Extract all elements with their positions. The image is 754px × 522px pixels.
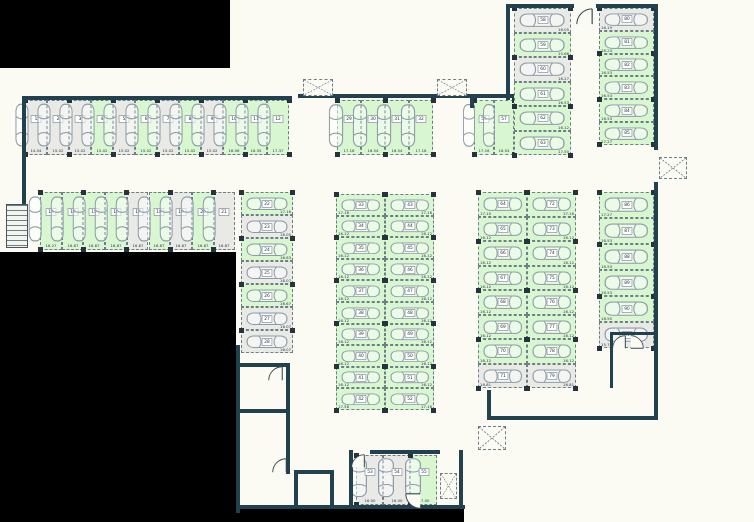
- stall-number: 54: [391, 469, 402, 476]
- column-marker: [124, 247, 129, 252]
- stall-number: 52: [404, 395, 415, 402]
- column-marker: [525, 337, 530, 342]
- parking-stall-44[interactable]: 4416.12: [385, 216, 434, 238]
- wall: [506, 4, 574, 8]
- stall-size-label: 15.02: [118, 149, 129, 153]
- wall: [506, 4, 510, 100]
- parking-stall-50[interactable]: 5016.12: [385, 345, 434, 367]
- car-icon: [378, 458, 395, 498]
- parking-stall-68[interactable]: 6816.12: [478, 290, 527, 315]
- stall-size-label: 15.02: [206, 149, 217, 153]
- stall-size-label: 17.16: [415, 149, 426, 153]
- column-marker: [568, 153, 573, 158]
- parking-stall-45[interactable]: 4516.12: [385, 237, 434, 259]
- car-icon: [181, 195, 195, 241]
- wall: [294, 470, 334, 474]
- car-icon: [94, 195, 108, 241]
- stall-number: 21: [219, 208, 230, 215]
- parking-stall-79[interactable]: 7916.81: [527, 364, 576, 389]
- parking-stall-52[interactable]: 5217.16: [385, 388, 434, 410]
- stall-number: 90: [621, 305, 632, 312]
- stall-number: 69: [497, 323, 508, 330]
- stall-size-label: 15.02: [162, 149, 173, 153]
- stall-size-label: 16.12: [421, 297, 432, 301]
- stall-number: 76: [546, 299, 557, 306]
- column-marker: [211, 190, 216, 195]
- column-marker: [431, 321, 436, 326]
- stall-number: 55: [418, 469, 429, 476]
- stall-size-label: 16.06: [228, 149, 239, 153]
- stall-size-label: 16.12: [338, 319, 349, 323]
- car-icon: [125, 103, 139, 147]
- parking-stall-12[interactable]: 1217.37: [267, 100, 289, 155]
- car-icon: [147, 103, 161, 147]
- outside-area: [0, 0, 230, 68]
- stall-number: 12: [273, 115, 284, 122]
- column-marker: [239, 328, 244, 333]
- parking-stall-84[interactable]: 8416.53: [599, 99, 654, 122]
- car-icon: [376, 103, 391, 147]
- parking-stall-46[interactable]: 4616.12: [385, 259, 434, 281]
- car-icon: [257, 103, 271, 147]
- stall-number: 72: [546, 201, 557, 208]
- stall-number: 42: [355, 395, 366, 402]
- car-icon: [81, 103, 95, 147]
- column-marker: [67, 152, 72, 157]
- column-marker: [211, 247, 216, 252]
- stall-size-label: 14.04: [30, 149, 41, 153]
- column-marker: [199, 152, 204, 157]
- column-marker: [290, 282, 295, 287]
- wall: [236, 505, 465, 509]
- stall-size-label: 15.02: [52, 149, 63, 153]
- stall-size-label: 16.50: [601, 317, 612, 321]
- door-arc-icon: [576, 8, 593, 25]
- stall-number: 39: [355, 331, 366, 338]
- column-marker: [38, 247, 43, 252]
- stall-size-label: 17.16: [563, 212, 574, 216]
- stall-number: 82: [621, 61, 632, 68]
- column-marker: [243, 152, 248, 157]
- column-marker: [476, 288, 481, 293]
- stall-number: 37: [355, 287, 366, 294]
- stall-size-label: 17.16: [338, 211, 349, 215]
- column-marker: [290, 236, 295, 241]
- parking-stall-43[interactable]: 4317.16: [385, 194, 434, 216]
- parking-stall-41[interactable]: 4116.12: [336, 367, 385, 389]
- stall-number: 81: [621, 38, 632, 45]
- column-marker: [472, 152, 477, 157]
- parking-stall-90[interactable]: 9016.50: [599, 296, 654, 322]
- stall-number: 73: [546, 225, 557, 232]
- stall-number: 74: [546, 250, 557, 257]
- stall-number: 80: [621, 16, 632, 23]
- car-icon: [463, 103, 476, 147]
- stall-size-label: 16.81: [480, 383, 491, 387]
- car-icon: [159, 195, 173, 241]
- parking-stall-25[interactable]: 2516.07: [241, 261, 293, 284]
- parking-stall-72[interactable]: 7217.16: [527, 192, 576, 217]
- stall-number: 40: [355, 352, 366, 359]
- stall-size-label: 16.53: [601, 72, 612, 76]
- stall-number: 66: [497, 250, 508, 257]
- parking-floor-plan: 114.04215.02315.02415.02515.02615.02715.…: [0, 0, 754, 522]
- stall-size-label: 16.12: [338, 297, 349, 301]
- stall-size-label: 17.16: [421, 211, 432, 215]
- column-marker: [573, 239, 578, 244]
- parking-stall-66[interactable]: 6616.12: [478, 241, 527, 266]
- stall-number: 24: [262, 246, 273, 253]
- stall-number: 59: [537, 41, 548, 48]
- column-marker: [168, 190, 173, 195]
- column-marker: [334, 192, 339, 197]
- shaft-x-icon: [437, 79, 467, 96]
- parking-stall-76[interactable]: 7616.12: [527, 290, 576, 315]
- parking-stall-63[interactable]: 6317.50: [514, 131, 571, 156]
- wall: [330, 470, 334, 508]
- wall: [487, 416, 658, 420]
- parking-stall-42[interactable]: 4217.58: [336, 388, 385, 410]
- stall-size-label: 16.12: [480, 285, 491, 289]
- car-icon: [352, 103, 367, 147]
- parking-stall-71[interactable]: 7116.81: [478, 364, 527, 389]
- parking-stall-36[interactable]: 3616.12: [336, 259, 385, 281]
- parking-stall-21[interactable]: 2116.87: [214, 192, 236, 250]
- car-icon: [29, 195, 43, 241]
- wall: [294, 470, 298, 508]
- car-icon: [103, 103, 117, 147]
- car-icon: [405, 458, 422, 498]
- column-marker: [597, 97, 602, 102]
- stall-size-label: 16.53: [601, 117, 612, 121]
- stall-size-label: 16.12: [480, 310, 491, 314]
- stall-size-label: 16.12: [421, 340, 432, 344]
- column-marker: [239, 282, 244, 287]
- column-marker: [512, 55, 517, 60]
- stall-number: 61: [537, 90, 548, 97]
- stall-number: 86: [621, 201, 632, 208]
- car-icon: [400, 103, 415, 147]
- car-icon: [72, 195, 86, 241]
- stall-number: 60: [537, 66, 548, 73]
- column-marker: [597, 190, 602, 195]
- parking-stall-87[interactable]: 8716.53: [599, 218, 654, 244]
- column-marker: [573, 190, 578, 195]
- parking-stall-78[interactable]: 7816.12: [527, 339, 576, 364]
- stall-number: 77: [546, 323, 557, 330]
- column-marker: [81, 247, 86, 252]
- parking-stall-37[interactable]: 3716.12: [336, 280, 385, 302]
- column-marker: [512, 104, 517, 109]
- parking-stall-65[interactable]: 6516.12: [478, 217, 527, 242]
- stall-size-label: 16.00: [391, 499, 402, 503]
- stall-size-label: 16.12: [421, 384, 432, 388]
- stall-number: 65: [497, 225, 508, 232]
- column-marker: [155, 152, 160, 157]
- parking-stall-24[interactable]: 2416.63: [241, 238, 293, 261]
- stall-number: 70: [497, 348, 508, 355]
- wall: [654, 182, 658, 420]
- door-arc-icon: [272, 458, 287, 473]
- parking-stall-60[interactable]: 6016.27: [514, 57, 571, 82]
- outside-area: [236, 509, 464, 522]
- wall: [236, 409, 290, 413]
- parking-stall-58[interactable]: 5816.05: [514, 8, 571, 33]
- stall-number: 32: [416, 115, 427, 122]
- stall-size-label: 16.87: [154, 244, 165, 248]
- parking-stall-75[interactable]: 7516.12: [527, 266, 576, 291]
- parking-stall-83[interactable]: 8316.53: [599, 76, 654, 99]
- parking-stall-27[interactable]: 2716.07: [241, 307, 293, 330]
- parking-stall-69[interactable]: 6916.12: [478, 315, 527, 340]
- parking-stall-85[interactable]: 8517.27: [599, 122, 654, 145]
- column-marker: [597, 242, 602, 247]
- parking-stall-59[interactable]: 5915.66: [514, 33, 571, 58]
- parking-stall-22[interactable]: 2217.16: [241, 192, 293, 215]
- stall-size-label: 16.54: [498, 149, 509, 153]
- column-marker: [525, 386, 530, 391]
- shaft-x-icon: [478, 426, 506, 450]
- wall: [487, 390, 491, 420]
- stall-size-label: 16.00: [364, 499, 375, 503]
- parking-stall-77[interactable]: 7716.12: [527, 315, 576, 340]
- stall-size-label: 17.27: [601, 140, 612, 144]
- parking-stall-51[interactable]: 5116.12: [385, 367, 434, 389]
- stall-number: 62: [537, 115, 548, 122]
- stall-size-label: 16.35: [250, 149, 261, 153]
- stall-size-label: 16.53: [601, 239, 612, 243]
- column-marker: [383, 278, 388, 283]
- stall-number: 41: [355, 374, 366, 381]
- stall-size-label: 17.10: [480, 212, 491, 216]
- stall-number: 83: [621, 84, 632, 91]
- column-marker: [597, 51, 602, 56]
- parking-stall-48[interactable]: 4816.12: [385, 302, 434, 324]
- parking-stall-74[interactable]: 7416.12: [527, 241, 576, 266]
- stall-size-label: 15.02: [184, 149, 195, 153]
- stall-size-label: 16.12: [338, 362, 349, 366]
- stall-number: 43: [404, 201, 415, 208]
- car-icon: [483, 103, 496, 147]
- parking-stall-49[interactable]: 4916.12: [385, 324, 434, 346]
- stall-number: 85: [621, 130, 632, 137]
- stall-size-label: 17.37: [272, 149, 283, 153]
- stall-number: 75: [546, 274, 557, 281]
- stall-number: 84: [621, 107, 632, 114]
- stall-number: 63: [537, 139, 548, 146]
- parking-stall-28[interactable]: 2816.07: [241, 330, 293, 353]
- door-arc-icon: [405, 493, 421, 509]
- parking-stall-39[interactable]: 3916.12: [336, 324, 385, 346]
- stall-size-label: 16.12: [338, 254, 349, 258]
- stall-number: 57: [499, 115, 510, 122]
- stall-number: 35: [355, 244, 366, 251]
- stall-size-label: 16.12: [480, 359, 491, 363]
- parking-stall-40[interactable]: 4016.12: [336, 345, 385, 367]
- stall-size-label: 16.12: [421, 254, 432, 258]
- stall-number: 33: [355, 201, 366, 208]
- parking-stall-47[interactable]: 4716.12: [385, 280, 434, 302]
- parking-stall-67[interactable]: 6716.12: [478, 266, 527, 291]
- car-icon: [137, 195, 151, 241]
- column-marker: [573, 386, 578, 391]
- parking-stall-23[interactable]: 2316.00: [241, 215, 293, 238]
- stall-number: 67: [497, 274, 508, 281]
- parking-stall-34[interactable]: 3416.12: [336, 216, 385, 238]
- stall-size-label: 16.53: [601, 265, 612, 269]
- column-marker: [431, 192, 436, 197]
- stall-size-label: 16.12: [563, 261, 574, 265]
- parking-stall-89[interactable]: 8916.53: [599, 270, 654, 296]
- wall: [370, 450, 440, 454]
- column-marker: [476, 386, 481, 391]
- parking-stall-70[interactable]: 7016.12: [478, 339, 527, 364]
- stall-size-label: 16.12: [480, 236, 491, 240]
- parking-stall-81[interactable]: 8116.23: [599, 31, 654, 54]
- car-icon: [191, 103, 205, 147]
- stall-size-label: 17.16: [280, 210, 291, 214]
- column-marker: [525, 239, 530, 244]
- parking-stall-80[interactable]: 8016.19: [599, 8, 654, 31]
- stall-size-label: 15.02: [96, 149, 107, 153]
- wall: [654, 4, 658, 150]
- car-icon: [169, 103, 183, 147]
- column-marker: [335, 98, 340, 103]
- stall-number: 38: [355, 309, 366, 316]
- shaft-x-icon: [303, 79, 333, 96]
- column-marker: [81, 190, 86, 195]
- stall-size-label: 17.58: [338, 405, 349, 409]
- stall-number: 34: [355, 223, 366, 230]
- wall: [596, 4, 658, 8]
- column-marker: [383, 152, 388, 157]
- car-icon: [37, 103, 51, 147]
- shaft-x-icon: [440, 473, 457, 499]
- column-marker: [111, 152, 116, 157]
- parking-stall-33[interactable]: 3317.16: [336, 194, 385, 216]
- wall: [459, 450, 463, 509]
- column-marker: [334, 235, 339, 240]
- stall-size-label: 16.12: [338, 276, 349, 280]
- stall-number: 88: [621, 253, 632, 260]
- stall-size-label: 16.07: [280, 348, 291, 352]
- stall-size-label: 16.12: [563, 310, 574, 314]
- column-marker: [334, 321, 339, 326]
- column-marker: [383, 98, 388, 103]
- stall-size-label: 16.87: [219, 244, 230, 248]
- column-marker: [383, 235, 388, 240]
- stall-number: 28: [262, 338, 273, 345]
- parking-stall-26[interactable]: 2616.67: [241, 284, 293, 307]
- stall-size-label: 16.87: [67, 244, 78, 248]
- wall: [236, 345, 240, 513]
- stall-size-label: 16.12: [558, 126, 569, 130]
- stall-size-label: 16.12: [338, 340, 349, 344]
- column-marker: [431, 152, 436, 157]
- door-arc-icon: [612, 335, 626, 349]
- column-marker: [512, 153, 517, 158]
- stall-size-label: 16.87: [132, 244, 143, 248]
- stall-number: 53: [364, 469, 375, 476]
- stall-size-label: 16.12: [338, 232, 349, 236]
- column-marker: [573, 337, 578, 342]
- stall-size-label: 16.54: [367, 149, 378, 153]
- stall-number: 79: [546, 372, 557, 379]
- parking-stall-82[interactable]: 8216.53: [599, 54, 654, 77]
- parking-stall-35[interactable]: 3516.12: [336, 237, 385, 259]
- stall-number: 51: [404, 374, 415, 381]
- stall-size-label: 16.54: [391, 149, 402, 153]
- stall-number: 45: [404, 244, 415, 251]
- stall-size-label: 16.87: [110, 244, 121, 248]
- stall-size-label: 17.27: [601, 213, 612, 217]
- car-icon: [235, 103, 249, 147]
- column-marker: [383, 321, 388, 326]
- column-marker: [568, 55, 573, 60]
- parking-stall-91[interactable]: 9115.76: [599, 322, 654, 348]
- column-marker: [38, 190, 43, 195]
- door-arc-icon: [351, 454, 365, 468]
- stall-size-label: 16.27: [45, 244, 56, 248]
- stall-size-label: 16.87: [176, 244, 187, 248]
- wall: [470, 94, 474, 108]
- parking-stall-86[interactable]: 8617.27: [599, 192, 654, 218]
- parking-stall-64[interactable]: 6417.10: [478, 192, 527, 217]
- column-marker: [525, 190, 530, 195]
- column-marker: [525, 288, 530, 293]
- parking-stall-88[interactable]: 8816.53: [599, 244, 654, 270]
- stall-size-label: 16.05: [558, 28, 569, 32]
- column-marker: [290, 190, 295, 195]
- stall-number: 47: [404, 287, 415, 294]
- stall-size-label: 16.63: [280, 256, 291, 260]
- column-marker: [597, 346, 602, 351]
- door-arc-icon: [268, 366, 283, 381]
- stall-size-label: 16.12: [338, 384, 349, 388]
- stall-number: 27: [262, 315, 273, 322]
- stall-number: 23: [262, 223, 273, 230]
- stall-number: 46: [404, 266, 415, 273]
- stall-number: 49: [404, 331, 415, 338]
- stall-size-label: 16.87: [197, 244, 208, 248]
- stall-size-label: 16.53: [601, 94, 612, 98]
- parking-stall-57[interactable]: 5716.54: [494, 100, 514, 155]
- parking-stall-61[interactable]: 6116.53: [514, 82, 571, 107]
- column-marker: [124, 190, 129, 195]
- column-marker: [597, 294, 602, 299]
- column-marker: [334, 364, 339, 369]
- parking-stall-62[interactable]: 6216.12: [514, 106, 571, 131]
- column-marker: [431, 235, 436, 240]
- column-marker: [335, 152, 340, 157]
- column-marker: [287, 152, 292, 157]
- stall-number: 68: [497, 299, 508, 306]
- outside-area: [0, 252, 236, 522]
- stall-size-label: 16.87: [89, 244, 100, 248]
- car-icon: [50, 195, 64, 241]
- wall: [286, 363, 290, 413]
- parking-stall-38[interactable]: 3816.12: [336, 302, 385, 324]
- parking-stall-73[interactable]: 7316.12: [527, 217, 576, 242]
- car-icon: [328, 103, 343, 147]
- stall-size-label: 17.16: [343, 149, 354, 153]
- car-icon: [59, 103, 73, 147]
- stall-number: 22: [262, 200, 273, 207]
- stall-size-label: 16.67: [280, 302, 291, 306]
- column-marker: [334, 408, 339, 413]
- column-marker: [383, 192, 388, 197]
- parking-stall-32[interactable]: 3217.16: [409, 100, 433, 155]
